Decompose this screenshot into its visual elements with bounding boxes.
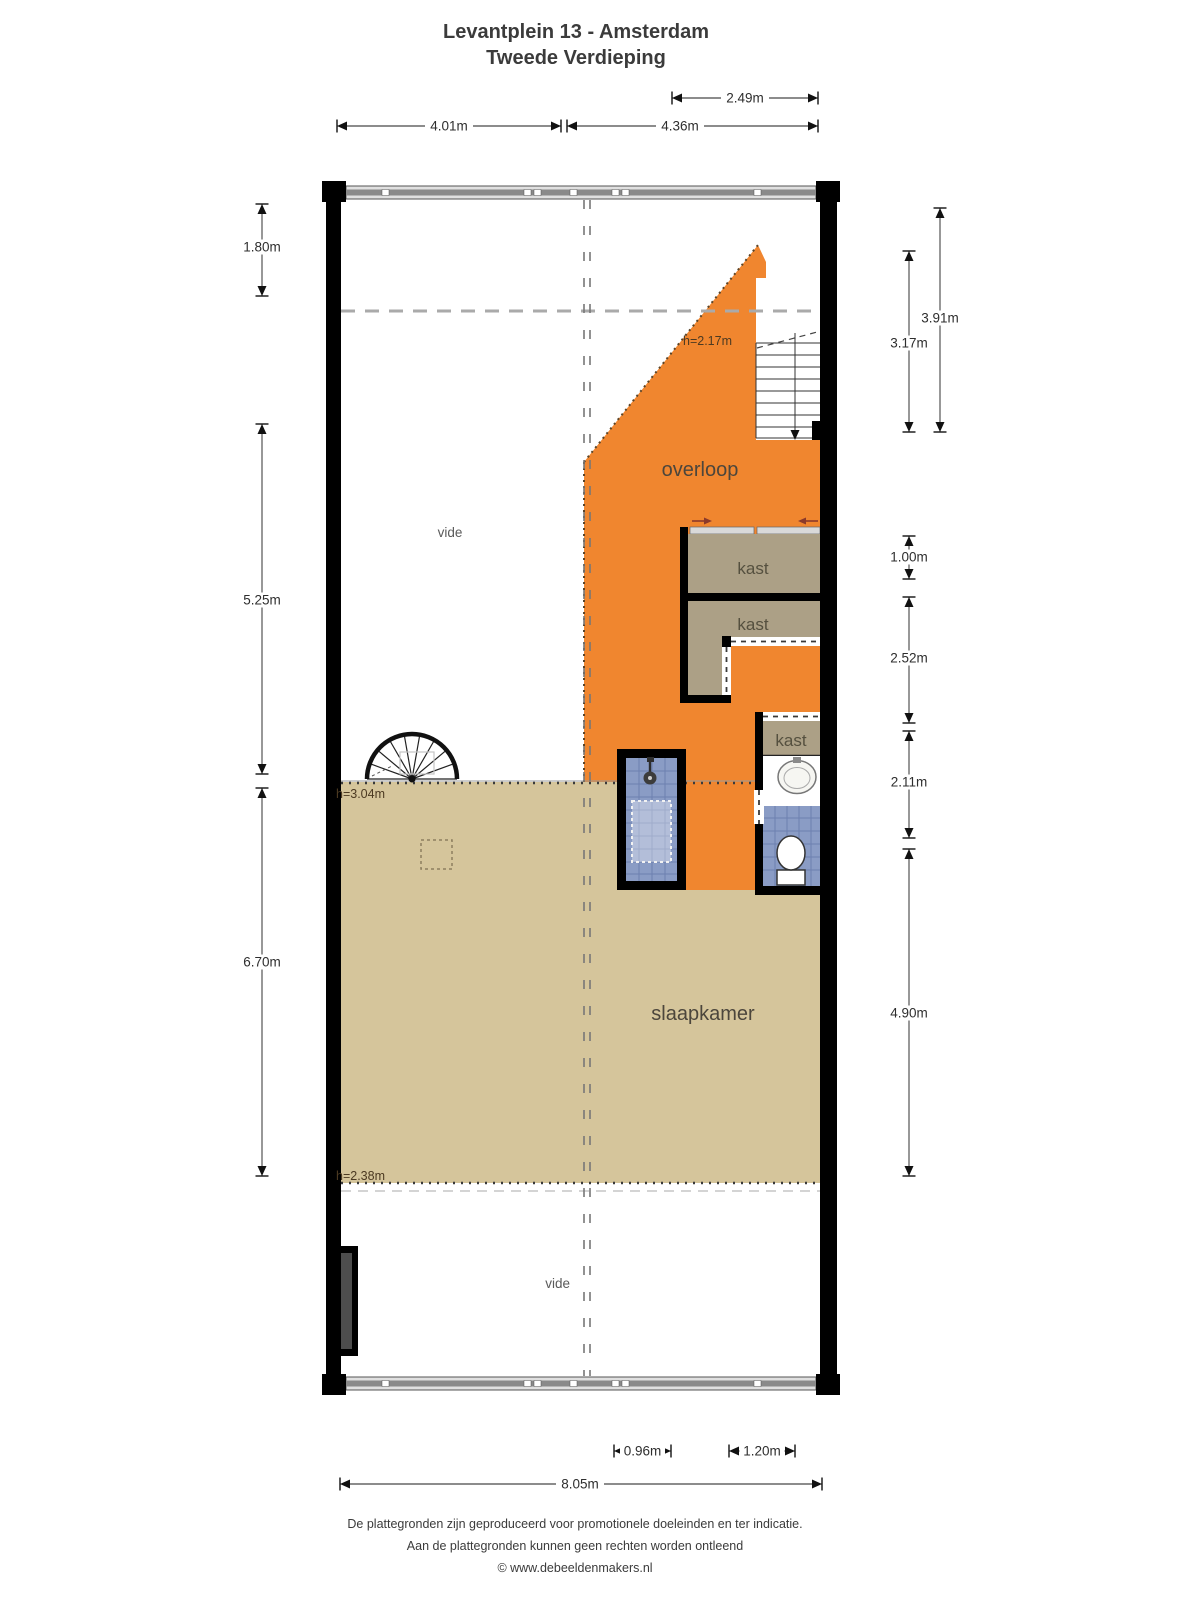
room-label-kast-top: kast (737, 559, 768, 578)
wall-right (820, 183, 837, 1393)
shower-tray (632, 801, 671, 862)
dimension-label: 8.05m (561, 1477, 599, 1492)
dim-right-391: 3.91m (916, 207, 964, 432)
toilet-door-opening-bg (754, 790, 764, 824)
wall-corner-bottom-right (816, 1374, 840, 1395)
footer-copyright: © www.debeeldenmakers.nl (497, 1561, 652, 1575)
footer-line-2: Aan de plattegronden kunnen geen rechten… (407, 1539, 743, 1553)
dimension-label: 2.11m (891, 775, 928, 790)
dim-bottom-096: 0.96m (613, 1444, 671, 1459)
dimension-label: 5.25m (243, 593, 281, 608)
dimension-label: 4.36m (661, 119, 699, 134)
dimension-label: 2.49m (726, 91, 764, 106)
room-label-vide-bottom: vide (545, 1276, 570, 1291)
window-glass-top (346, 190, 816, 196)
toilet-bowl (777, 836, 805, 870)
kast-middle-floor-b (688, 641, 722, 695)
shower-head-center (648, 776, 652, 780)
kast-middle-corner-post (722, 636, 731, 647)
title-block: Levantplein 13 - Amsterdam Tweede Verdie… (443, 21, 709, 69)
plan-subtitle: Tweede Verdieping (486, 47, 666, 69)
room-label-kast-small: kast (775, 731, 806, 750)
dimension-label: 3.91m (921, 311, 959, 326)
dim-top-436: 4.36m (566, 119, 818, 134)
dim-top-401: 4.01m (336, 119, 561, 134)
spiral-staircase (367, 734, 457, 783)
spiral-stair-rail (367, 734, 457, 779)
dimension-label: 1.20m (743, 1444, 781, 1459)
dim-right-317: 3.17m (885, 250, 933, 432)
shower-pipe-mount (647, 757, 654, 762)
shower-room (617, 749, 686, 890)
toilet-wall-bottom (755, 886, 820, 895)
floor-plan-page: Levantplein 13 - Amsterdam Tweede Verdie… (0, 0, 1200, 1600)
spiral-stair-treads (367, 735, 457, 779)
kast-middle-wall-left (680, 601, 688, 703)
footer-block: De plattegronden zijn geproduceerd voor … (347, 1517, 802, 1575)
dim-left-670: 6.70m (238, 787, 286, 1176)
dimension-label: 4.90m (890, 1006, 928, 1021)
footer-line-1: De plattegronden zijn geproduceerd voor … (347, 1517, 802, 1531)
floor-plan: Levantplein 13 - Amsterdam Tweede Verdie… (0, 0, 1200, 1600)
dim-left-525: 5.25m (238, 423, 286, 774)
dimension-label: 2.52m (890, 651, 928, 666)
dim-right-100: 1.00m (885, 535, 933, 579)
dim-top-249: 2.49m (671, 91, 818, 106)
kast-top-wall-left (680, 527, 688, 601)
dimension-label: 1.00m (890, 550, 928, 565)
window-glass-bottom (346, 1381, 816, 1387)
sink-tap (793, 757, 801, 763)
stair-treads (756, 343, 820, 438)
chimney-core (340, 1253, 352, 1349)
wall-corner-bottom-left (322, 1374, 346, 1395)
window-band-top (322, 181, 840, 202)
floor-areas (341, 245, 820, 1183)
sliding-door-left (690, 527, 754, 534)
height-label-217: h=2.17m (683, 334, 732, 348)
window-band-bottom (322, 1374, 840, 1395)
toilet-tank (777, 870, 805, 885)
sliding-door-right (757, 527, 820, 534)
height-label-304: h=3.04m (336, 787, 385, 801)
dim-left-180: 1.80m (238, 203, 286, 296)
dim-right-252: 2.52m (885, 596, 933, 723)
room-label-overloop: overloop (662, 459, 739, 481)
dim-right-211: 2.11m (885, 730, 933, 838)
dim-right-490: 4.90m (885, 848, 933, 1176)
plan-title: Levantplein 13 - Amsterdam (443, 21, 709, 43)
dim-bottom-805: 8.05m (339, 1477, 822, 1492)
dimension-label: 1.80m (243, 240, 281, 255)
dimension-label: 6.70m (243, 955, 281, 970)
dimension-label: 4.01m (430, 119, 468, 134)
wall-corner-top-left (322, 181, 346, 202)
room-label-vide-top: vide (438, 525, 463, 540)
kast-middle-wall-bottom (680, 695, 731, 703)
kast-top-wall-bottom (680, 593, 820, 601)
wall-corner-top-right (816, 181, 840, 202)
room-label-kast-middle: kast (737, 615, 768, 634)
toilet-kast-opening-bg (763, 712, 820, 721)
height-label-238: h=2.38m (336, 1169, 385, 1183)
spiral-stair-post (409, 776, 416, 783)
dimension-label: 0.96m (624, 1444, 662, 1459)
room-label-slaapkamer: slaapkamer (651, 1003, 755, 1025)
dimension-label: 3.17m (890, 336, 928, 351)
dim-bottom-120: 1.20m (728, 1444, 795, 1459)
